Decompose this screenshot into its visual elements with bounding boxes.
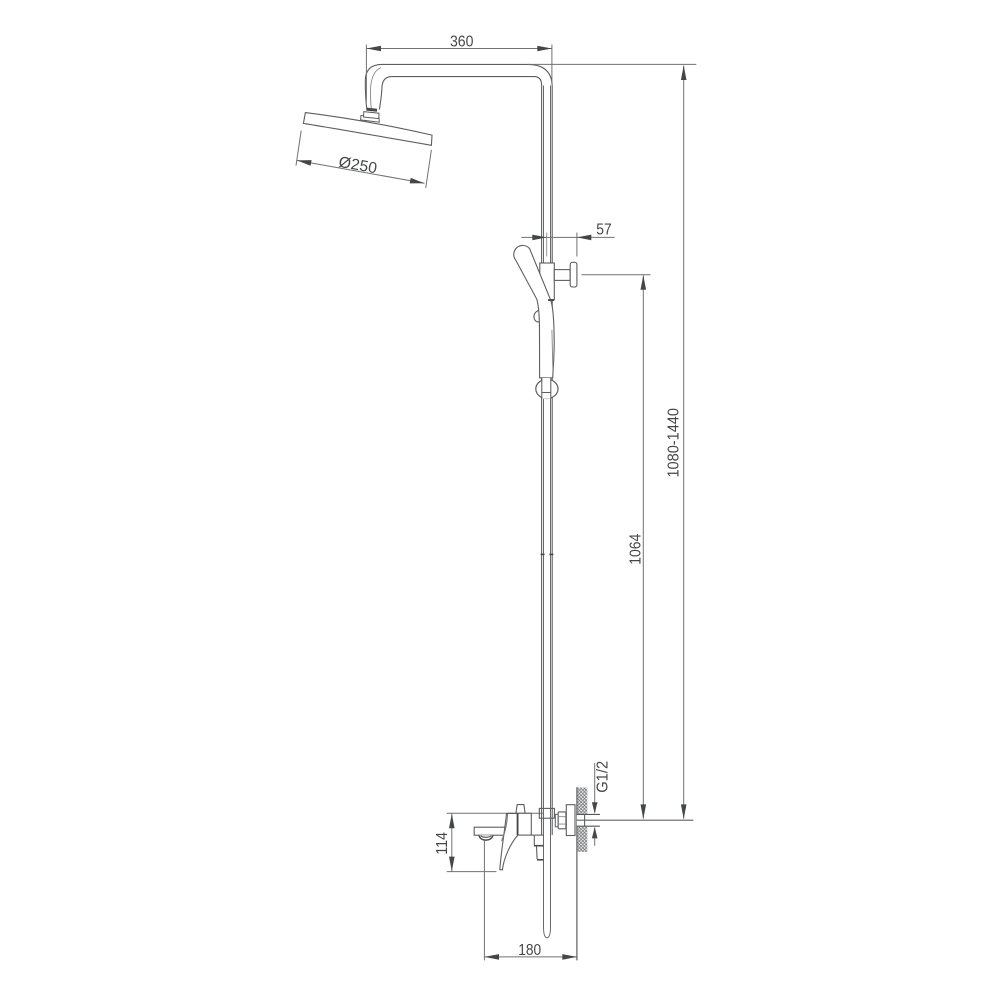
- svg-text:1080-1440: 1080-1440: [666, 408, 683, 478]
- svg-text:360: 360: [450, 33, 474, 50]
- svg-text:57: 57: [596, 222, 611, 239]
- svg-text:114: 114: [434, 832, 451, 855]
- svg-text:180: 180: [518, 942, 541, 959]
- svg-text:1064: 1064: [627, 533, 644, 564]
- svg-text:Ø250: Ø250: [337, 154, 378, 178]
- svg-text:G1/2: G1/2: [594, 761, 611, 793]
